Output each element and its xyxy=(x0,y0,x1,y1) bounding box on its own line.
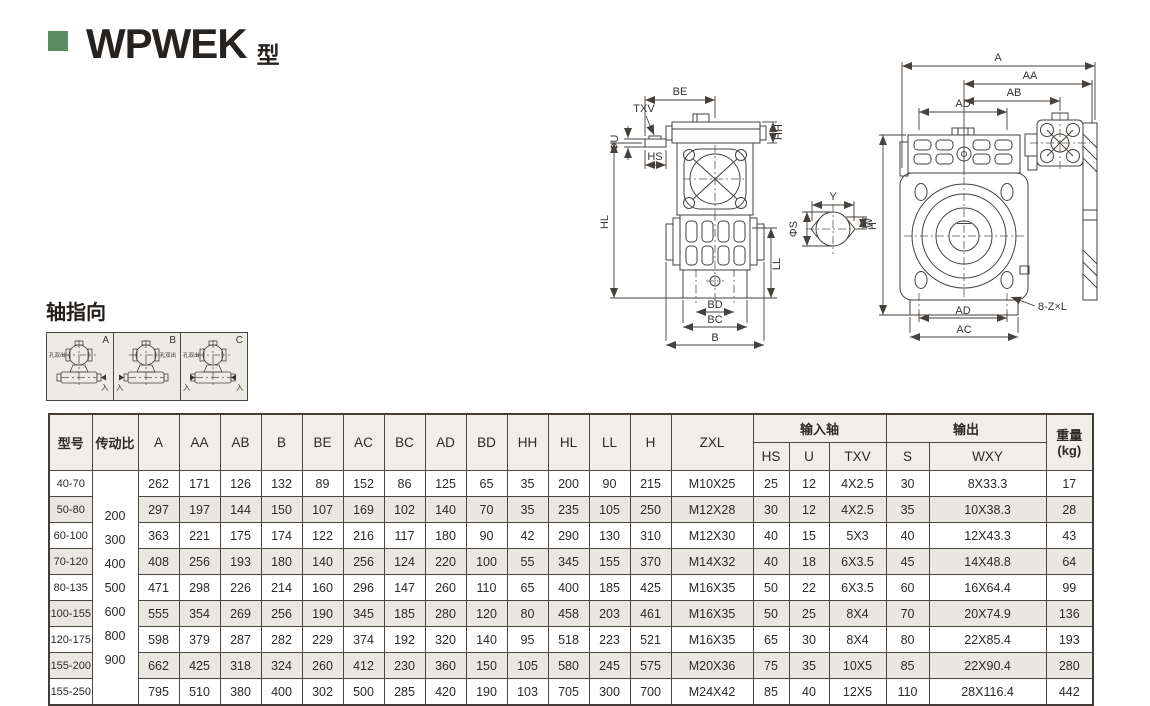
value-cell: 400 xyxy=(261,679,302,706)
ratio-value: 800 xyxy=(105,624,126,648)
value-cell: 500 xyxy=(343,679,384,706)
dim-label-txv: TXV xyxy=(633,103,655,115)
value-cell: 80 xyxy=(507,601,548,627)
value-cell: 12X43.3 xyxy=(929,523,1046,549)
value-cell: 126 xyxy=(220,471,261,497)
value-cell: 16X64.4 xyxy=(929,575,1046,601)
value-cell: 95 xyxy=(507,627,548,653)
value-cell: 518 xyxy=(548,627,589,653)
value-cell: 345 xyxy=(343,601,384,627)
value-cell: 169 xyxy=(343,497,384,523)
dim-label-hs: HS xyxy=(647,151,662,163)
model-cell: 70-120 xyxy=(49,549,92,575)
value-cell: 124 xyxy=(384,549,425,575)
dim-label-hh: HH xyxy=(773,124,785,140)
value-cell: 140 xyxy=(466,627,507,653)
value-cell: 200 xyxy=(548,471,589,497)
value-cell: 380 xyxy=(220,679,261,706)
value-cell: 150 xyxy=(466,653,507,679)
ratio-value: 500 xyxy=(105,576,126,600)
axis-box-b: B 孔双出 入 xyxy=(113,332,181,401)
header-dim-bc: BC xyxy=(384,414,425,471)
dim-label-ad-top: AD xyxy=(955,98,970,110)
value-cell: 354 xyxy=(179,601,220,627)
value-cell: 296 xyxy=(343,575,384,601)
value-cell: 5X3 xyxy=(829,523,886,549)
value-cell: 461 xyxy=(630,601,671,627)
dim-label-aa: AA xyxy=(1023,70,1038,82)
table-row-100-155: 100-155555354269256190345185280120804582… xyxy=(49,601,1093,627)
value-cell: 136 xyxy=(1046,601,1093,627)
svg-text:孔双出: 孔双出 xyxy=(183,351,200,359)
header-input-u: U xyxy=(789,443,829,471)
header-input-hs: HS xyxy=(753,443,789,471)
value-cell: M12X28 xyxy=(671,497,753,523)
table-row-60-100: 60-1003632211751741222161171809042290130… xyxy=(49,523,1093,549)
value-cell: 190 xyxy=(466,679,507,706)
value-cell: 221 xyxy=(179,523,220,549)
axis-direction-title: 轴指向 xyxy=(46,296,106,325)
header-dim-b: B xyxy=(261,414,302,471)
value-cell: 215 xyxy=(630,471,671,497)
value-cell: 25 xyxy=(789,601,829,627)
value-cell: 310 xyxy=(630,523,671,549)
value-cell: 86 xyxy=(384,471,425,497)
value-cell: 80 xyxy=(886,627,929,653)
value-cell: 18 xyxy=(789,549,829,575)
catalog-page: WPWEK 型 xyxy=(0,0,1150,706)
value-cell: M24X42 xyxy=(671,679,753,706)
technical-drawings: BE TXV ΦU HS HH HL LL BD xyxy=(600,50,1150,400)
ratio-cell: 200300400500600800900 xyxy=(92,471,138,706)
value-cell: 85 xyxy=(886,653,929,679)
value-cell: 50 xyxy=(753,601,789,627)
svg-text:入: 入 xyxy=(101,383,109,392)
table-row-50-80: 50-8029719714415010716910214070352351052… xyxy=(49,497,1093,523)
model-cell: 120-175 xyxy=(49,627,92,653)
value-cell: 102 xyxy=(384,497,425,523)
value-cell: 10X38.3 xyxy=(929,497,1046,523)
dim-label-h: H xyxy=(867,222,879,230)
value-cell: 90 xyxy=(589,471,630,497)
value-cell: 70 xyxy=(886,601,929,627)
value-cell: 226 xyxy=(220,575,261,601)
shaft-section-detail: Y W ΦS xyxy=(788,191,875,254)
value-cell: 171 xyxy=(179,471,220,497)
svg-text:入: 入 xyxy=(183,383,191,392)
value-cell: M16X35 xyxy=(671,627,753,653)
value-cell: 100 xyxy=(466,549,507,575)
value-cell: 256 xyxy=(343,549,384,575)
value-cell: 20X74.9 xyxy=(929,601,1046,627)
value-cell: 28 xyxy=(1046,497,1093,523)
dim-label-bd: BD xyxy=(707,299,722,311)
value-cell: 287 xyxy=(220,627,261,653)
axis-diagram-b: 孔双出 入 xyxy=(115,337,177,395)
value-cell: 700 xyxy=(630,679,671,706)
value-cell: 425 xyxy=(630,575,671,601)
value-cell: 262 xyxy=(138,471,179,497)
value-cell: 90 xyxy=(466,523,507,549)
svg-text:孔双出: 孔双出 xyxy=(160,351,177,359)
value-cell: 245 xyxy=(589,653,630,679)
dim-label-ab: AB xyxy=(1007,87,1022,99)
value-cell: 521 xyxy=(630,627,671,653)
table-header: 型号传动比AAAABBBEACBCADBDHHHLLLHZXL输入轴输出重量(k… xyxy=(49,414,1093,471)
value-cell: 70 xyxy=(466,497,507,523)
table-row-70-120: 70-1204082561931801402561242201005534515… xyxy=(49,549,1093,575)
value-cell: 152 xyxy=(343,471,384,497)
value-cell: 555 xyxy=(138,601,179,627)
header-weight-line2: (kg) xyxy=(1047,443,1093,458)
svg-text:入: 入 xyxy=(236,383,244,392)
header-weight-line1: 重量 xyxy=(1047,428,1093,443)
ratio-values: 200300400500600800900 xyxy=(93,471,138,704)
value-cell: 282 xyxy=(261,627,302,653)
value-cell: 280 xyxy=(425,601,466,627)
value-cell: 40 xyxy=(753,549,789,575)
value-cell: 65 xyxy=(466,471,507,497)
header-dim-a: A xyxy=(138,414,179,471)
value-cell: 795 xyxy=(138,679,179,706)
value-cell: 85 xyxy=(753,679,789,706)
value-cell: 4X2.5 xyxy=(829,471,886,497)
value-cell: 64 xyxy=(1046,549,1093,575)
value-cell: 22 xyxy=(789,575,829,601)
value-cell: 75 xyxy=(753,653,789,679)
value-cell: 40 xyxy=(886,523,929,549)
value-cell: 220 xyxy=(425,549,466,575)
value-cell: 4X2.5 xyxy=(829,497,886,523)
value-cell: 65 xyxy=(753,627,789,653)
axis-direction-legend: A 孔双出 入 B xyxy=(46,332,248,401)
value-cell: 6X3.5 xyxy=(829,575,886,601)
value-cell: 192 xyxy=(384,627,425,653)
value-cell: 408 xyxy=(138,549,179,575)
value-cell: 160 xyxy=(302,575,343,601)
value-cell: 60 xyxy=(886,575,929,601)
value-cell: 190 xyxy=(302,601,343,627)
value-cell: 14X48.8 xyxy=(929,549,1046,575)
value-cell: 125 xyxy=(425,471,466,497)
value-cell: 302 xyxy=(302,679,343,706)
value-cell: 150 xyxy=(261,497,302,523)
value-cell: 40 xyxy=(789,679,829,706)
value-cell: 35 xyxy=(789,653,829,679)
value-cell: 45 xyxy=(886,549,929,575)
value-cell: 30 xyxy=(753,497,789,523)
value-cell: 580 xyxy=(548,653,589,679)
model-cell: 80-135 xyxy=(49,575,92,601)
header-dim-ac: AC xyxy=(343,414,384,471)
model-cell: 155-250 xyxy=(49,679,92,706)
dim-label-ac: AC xyxy=(956,324,971,336)
value-cell: 35 xyxy=(886,497,929,523)
value-cell: 35 xyxy=(507,497,548,523)
value-cell: 122 xyxy=(302,523,343,549)
model-cell: 50-80 xyxy=(49,497,92,523)
value-cell: 8X4 xyxy=(829,627,886,653)
front-view-drawing: BE TXV ΦU HS HH HL LL BD xyxy=(600,86,785,345)
value-cell: 174 xyxy=(261,523,302,549)
value-cell: 197 xyxy=(179,497,220,523)
model-series-title: WPWEK xyxy=(86,22,247,66)
value-cell: 15 xyxy=(789,523,829,549)
value-cell: 510 xyxy=(179,679,220,706)
value-cell: 30 xyxy=(886,471,929,497)
value-cell: 442 xyxy=(1046,679,1093,706)
value-cell: 320 xyxy=(425,627,466,653)
value-cell: 22X90.4 xyxy=(929,653,1046,679)
value-cell: M12X30 xyxy=(671,523,753,549)
value-cell: 35 xyxy=(507,471,548,497)
value-cell: 285 xyxy=(384,679,425,706)
value-cell: 25 xyxy=(753,471,789,497)
table-row-155-200: 155-200662425318324260412230360150105580… xyxy=(49,653,1093,679)
header-dim-hl: HL xyxy=(548,414,589,471)
header-dim-aa: AA xyxy=(179,414,220,471)
value-cell: 43 xyxy=(1046,523,1093,549)
value-cell: 105 xyxy=(507,653,548,679)
value-cell: 132 xyxy=(261,471,302,497)
axis-diagram-a: 孔双出 入 xyxy=(48,337,110,395)
dim-label-b: B xyxy=(711,332,718,344)
value-cell: 250 xyxy=(630,497,671,523)
value-cell: 379 xyxy=(179,627,220,653)
value-cell: 175 xyxy=(220,523,261,549)
dim-label-hl: HL xyxy=(600,215,611,229)
value-cell: 30 xyxy=(789,627,829,653)
value-cell: 260 xyxy=(302,653,343,679)
value-cell: 107 xyxy=(302,497,343,523)
axis-box-c: C 孔双出 入 入 xyxy=(180,332,248,401)
value-cell: 324 xyxy=(261,653,302,679)
value-cell: M14X32 xyxy=(671,549,753,575)
value-cell: 12 xyxy=(789,497,829,523)
value-cell: 185 xyxy=(384,601,425,627)
header-dim-ab: AB xyxy=(220,414,261,471)
model-cell: 60-100 xyxy=(49,523,92,549)
value-cell: 705 xyxy=(548,679,589,706)
value-cell: 155 xyxy=(589,549,630,575)
value-cell: 40 xyxy=(753,523,789,549)
value-cell: 12X5 xyxy=(829,679,886,706)
value-cell: 6X3.5 xyxy=(829,549,886,575)
value-cell: 662 xyxy=(138,653,179,679)
model-cell: 40-70 xyxy=(49,471,92,497)
value-cell: 412 xyxy=(343,653,384,679)
table-row-155-250: 155-250795510380400302500285420190103705… xyxy=(49,679,1093,706)
header-ratio: 传动比 xyxy=(92,414,138,471)
value-cell: 50 xyxy=(753,575,789,601)
value-cell: 280 xyxy=(1046,653,1093,679)
value-cell: M16X35 xyxy=(671,575,753,601)
value-cell: 105 xyxy=(589,497,630,523)
value-cell: 185 xyxy=(589,575,630,601)
value-cell: 400 xyxy=(548,575,589,601)
header-output-wxy: WXY xyxy=(929,443,1046,471)
table-row-120-175: 120-175598379287282229374192320140955182… xyxy=(49,627,1093,653)
header-dim-h: H xyxy=(630,414,671,471)
side-view-drawing: A AA AB AD H AD AC 8-Z×L xyxy=(867,52,1097,337)
value-cell: 300 xyxy=(589,679,630,706)
header-dim-bd: BD xyxy=(466,414,507,471)
value-cell: 22X85.4 xyxy=(929,627,1046,653)
header-output-group: 输出 xyxy=(886,414,1046,443)
value-cell: 10X5 xyxy=(829,653,886,679)
ratio-value: 400 xyxy=(105,552,126,576)
table-body: 40-7020030040050060080090026217112613289… xyxy=(49,471,1093,706)
value-cell: 318 xyxy=(220,653,261,679)
value-cell: M16X35 xyxy=(671,601,753,627)
value-cell: 229 xyxy=(302,627,343,653)
ratio-value: 300 xyxy=(105,528,126,552)
value-cell: 298 xyxy=(179,575,220,601)
value-cell: M10X25 xyxy=(671,471,753,497)
ratio-value: 900 xyxy=(105,648,126,672)
value-cell: 144 xyxy=(220,497,261,523)
axis-box-a: A 孔双出 入 xyxy=(46,332,114,401)
value-cell: 12 xyxy=(789,471,829,497)
dim-label-holes: 8-Z×L xyxy=(1038,301,1067,313)
header-dim-ad: AD xyxy=(425,414,466,471)
value-cell: 110 xyxy=(466,575,507,601)
value-cell: 103 xyxy=(507,679,548,706)
value-cell: 471 xyxy=(138,575,179,601)
value-cell: 230 xyxy=(384,653,425,679)
value-cell: 42 xyxy=(507,523,548,549)
value-cell: 575 xyxy=(630,653,671,679)
value-cell: 598 xyxy=(138,627,179,653)
model-cell: 100-155 xyxy=(49,601,92,627)
value-cell: 203 xyxy=(589,601,630,627)
value-cell: 140 xyxy=(302,549,343,575)
value-cell: 8X4 xyxy=(829,601,886,627)
value-cell: 345 xyxy=(548,549,589,575)
value-cell: 65 xyxy=(507,575,548,601)
dim-label-a: A xyxy=(994,52,1002,64)
value-cell: 110 xyxy=(886,679,929,706)
ratio-value: 200 xyxy=(105,504,126,528)
value-cell: 130 xyxy=(589,523,630,549)
value-cell: 420 xyxy=(425,679,466,706)
value-cell: M20X36 xyxy=(671,653,753,679)
value-cell: 147 xyxy=(384,575,425,601)
header-dim-hh: HH xyxy=(507,414,548,471)
header-input-group: 输入轴 xyxy=(753,414,886,443)
dim-label-bc: BC xyxy=(707,314,722,326)
page-title: WPWEK 型 xyxy=(48,22,280,70)
model-type-suffix: 型 xyxy=(257,36,280,70)
header-dim-be: BE xyxy=(302,414,343,471)
header-input-txv: TXV xyxy=(829,443,886,471)
value-cell: 256 xyxy=(261,601,302,627)
value-cell: 370 xyxy=(630,549,671,575)
dim-label-y: Y xyxy=(829,191,837,203)
value-cell: 290 xyxy=(548,523,589,549)
value-cell: 193 xyxy=(1046,627,1093,653)
value-cell: 458 xyxy=(548,601,589,627)
dim-label-be: BE xyxy=(673,86,688,98)
value-cell: 235 xyxy=(548,497,589,523)
model-cell: 155-200 xyxy=(49,653,92,679)
dim-label-ll: LL xyxy=(771,258,783,270)
dim-label-ad-bottom: AD xyxy=(955,305,970,317)
value-cell: 17 xyxy=(1046,471,1093,497)
dim-label-phi-s: ΦS xyxy=(788,221,800,237)
header-model: 型号 xyxy=(49,414,92,471)
spec-table: 型号传动比AAAABBBEACBCADBDHHHLLLHZXL输入轴输出重量(k… xyxy=(48,413,1094,706)
value-cell: 374 xyxy=(343,627,384,653)
value-cell: 216 xyxy=(343,523,384,549)
value-cell: 223 xyxy=(589,627,630,653)
value-cell: 140 xyxy=(425,497,466,523)
value-cell: 180 xyxy=(261,549,302,575)
header-dim-ll: LL xyxy=(589,414,630,471)
value-cell: 256 xyxy=(179,549,220,575)
value-cell: 363 xyxy=(138,523,179,549)
value-cell: 28X116.4 xyxy=(929,679,1046,706)
svg-text:孔双出: 孔双出 xyxy=(49,351,66,359)
value-cell: 89 xyxy=(302,471,343,497)
value-cell: 8X33.3 xyxy=(929,471,1046,497)
value-cell: 260 xyxy=(425,575,466,601)
value-cell: 180 xyxy=(425,523,466,549)
value-cell: 214 xyxy=(261,575,302,601)
table-row-40-70: 40-7020030040050060080090026217112613289… xyxy=(49,471,1093,497)
svg-text:入: 入 xyxy=(116,383,124,392)
value-cell: 193 xyxy=(220,549,261,575)
value-cell: 269 xyxy=(220,601,261,627)
value-cell: 297 xyxy=(138,497,179,523)
value-cell: 425 xyxy=(179,653,220,679)
value-cell: 120 xyxy=(466,601,507,627)
value-cell: 360 xyxy=(425,653,466,679)
axis-diagram-c: 孔双出 入 入 xyxy=(182,337,244,395)
green-bullet-icon xyxy=(48,31,68,51)
header-dim-zxl: ZXL xyxy=(671,414,753,471)
value-cell: 99 xyxy=(1046,575,1093,601)
header-output-s: S xyxy=(886,443,929,471)
value-cell: 117 xyxy=(384,523,425,549)
ratio-value: 600 xyxy=(105,600,126,624)
value-cell: 55 xyxy=(507,549,548,575)
header-weight: 重量(kg) xyxy=(1046,414,1093,471)
table-row-80-135: 80-1354712982262141602961472601106540018… xyxy=(49,575,1093,601)
